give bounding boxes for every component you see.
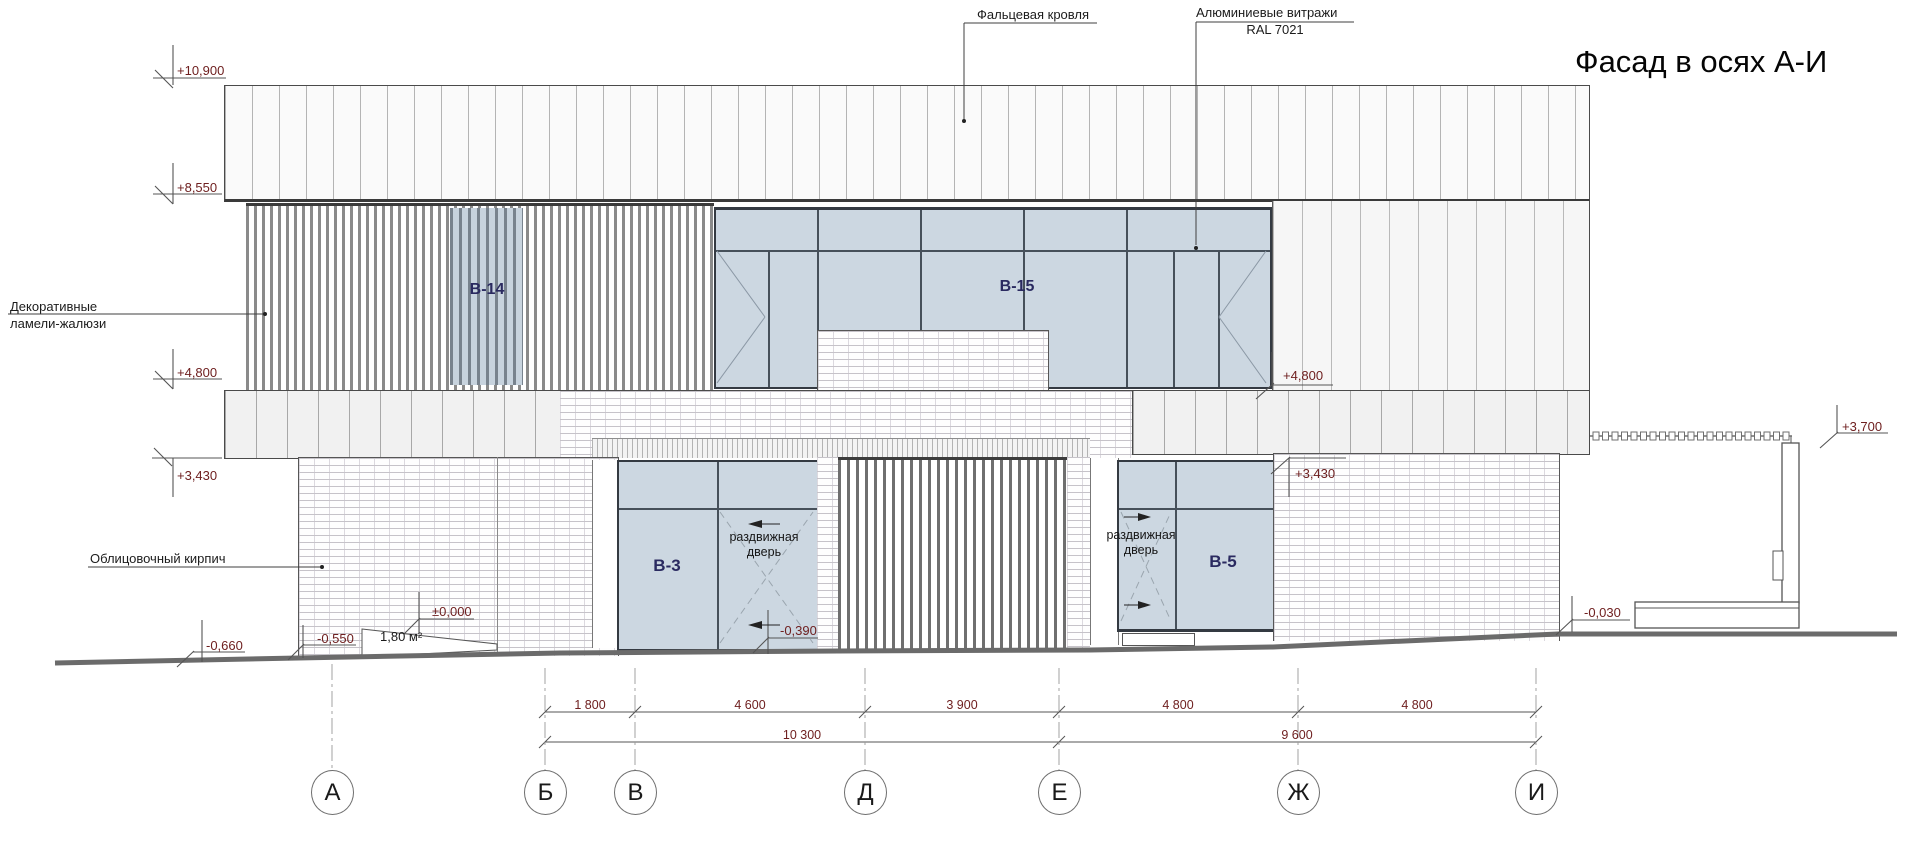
dim-1800: 1 800 <box>574 698 605 712</box>
facade-drawing-sheet: В-14 В-15 В-3 В-5 <box>0 0 1920 857</box>
axis-bubble-i: И <box>1515 770 1558 815</box>
level-3700: +3,700 <box>1842 419 1882 434</box>
level-3430-right: +3,430 <box>1295 466 1335 481</box>
callout-leaders <box>8 22 1354 569</box>
sliding-note-b5-line1: раздвижная <box>1089 528 1193 543</box>
drawing-linework <box>0 0 1920 857</box>
sheet-title: Фасад в осях А-И <box>1575 44 1827 80</box>
dim-9600: 9 600 <box>1281 728 1312 742</box>
level-8550: +8,550 <box>177 180 217 195</box>
sliding-note-b3-line2: дверь <box>700 545 828 560</box>
level-0660: -0,660 <box>206 638 243 653</box>
axis-bubble-b: Б <box>524 770 567 815</box>
level-4800-right: +4,800 <box>1283 368 1323 383</box>
axis-bubble-e: Е <box>1038 770 1081 815</box>
axis-bubble-a: А <box>311 770 354 815</box>
callout-louvers-line2: ламели-жалюзи <box>10 316 106 331</box>
callout-glazing-line2: RAL 7021 <box>1196 22 1354 37</box>
level-0390: -0,390 <box>780 623 817 638</box>
axis-lines <box>332 664 1536 770</box>
level-zero: ±0,000 <box>432 604 472 619</box>
axis-bubble-v: В <box>614 770 657 815</box>
gate-pillar <box>1782 443 1799 603</box>
dim-3900: 3 900 <box>946 698 977 712</box>
sliding-note-b5: раздвижная дверь <box>1089 528 1193 558</box>
level-0550: -0,550 <box>317 631 354 646</box>
sliding-note-b3: раздвижная дверь <box>700 530 828 560</box>
porch-area-note: 1,80 м² <box>380 629 422 644</box>
level-mark-flags <box>152 45 1888 667</box>
dim-10300: 10 300 <box>783 728 821 742</box>
casement-symbols <box>717 251 1266 383</box>
callout-louvers-line1: Декоративные <box>10 299 97 314</box>
sliding-note-b5-line2: дверь <box>1089 543 1193 558</box>
level-4800-left: +4,800 <box>177 365 217 380</box>
axis-bubble-zh: Ж <box>1277 770 1320 815</box>
level-3430-left: +3,430 <box>177 468 217 483</box>
callout-roof: Фальцевая кровля <box>977 7 1089 22</box>
railing-balusters <box>1592 431 1792 442</box>
dim-4600: 4 600 <box>734 698 765 712</box>
dim-4800-b: 4 800 <box>1401 698 1432 712</box>
callout-glazing-line1: Алюминиевые витражи <box>1196 5 1337 20</box>
level-10900: +10,900 <box>177 63 224 78</box>
level-0030: -0,030 <box>1584 605 1621 620</box>
axis-bubble-d: Д <box>844 770 887 815</box>
dim-4800-a: 4 800 <box>1162 698 1193 712</box>
callout-brick: Облицовочный кирпич <box>90 551 225 566</box>
dimension-lines <box>539 706 1542 748</box>
low-wall <box>1635 602 1799 628</box>
sliding-note-b3-line1: раздвижная <box>700 530 828 545</box>
gate-pillar-notch <box>1773 551 1783 580</box>
